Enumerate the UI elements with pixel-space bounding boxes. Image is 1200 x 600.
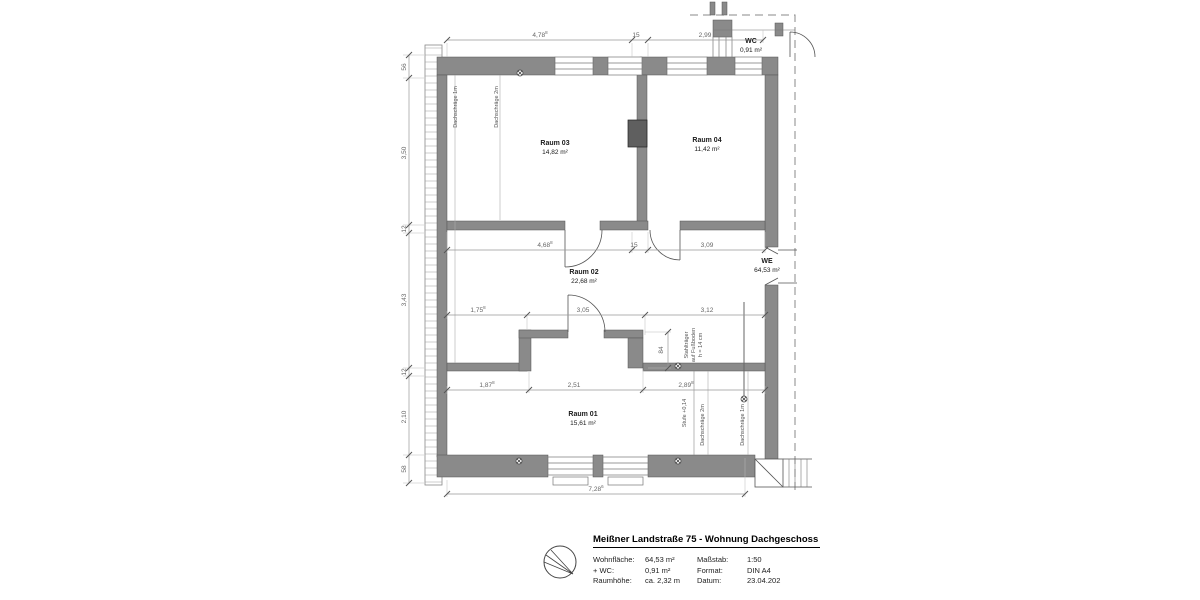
wall-top-2 [707,57,735,75]
wall-left [437,75,447,457]
window-sill-2 [608,477,643,485]
dim-label: 15 [630,242,638,249]
dim-label: 4,688 [537,240,553,249]
floor-plan-svg: 4,788 15 2,99 4,688 15 3,09 1,758 3,05 3… [0,0,1200,600]
column-marker-icon [675,363,681,369]
dim-label: 15 [632,32,640,39]
note-dachschraege-1m-br: Dachschräge 1m [740,404,746,446]
field-value: DIN A4 [747,566,820,577]
dim-label: 2,10 [401,410,408,423]
entrance-reveal [765,247,797,285]
field-label: Datum: [697,576,747,587]
note-stufe: Stufe +0,14 [682,399,688,427]
dim-label: 58 [401,465,408,473]
field-label: Format: [697,566,747,577]
door-raum04 [650,230,680,260]
wall-mid-1 [447,221,565,230]
wall-wc-hinge-block [775,23,783,36]
wall-top-1 [437,57,555,75]
wall-mid-3 [680,221,765,230]
field-label: Wohnfläche: [593,555,645,566]
title-block-fields: Wohnfläche: 64,53 m² Maßstab: 1:50 + WC:… [593,555,820,587]
note-stahltraeger-1: Stahlträger [684,331,690,358]
note-stahltraeger-3: h = 14 cm [698,332,704,357]
room-label-we: WE [761,258,773,265]
field-label: Maßstab: [697,555,747,566]
dim-label: 3,09 [701,242,714,249]
room-area-raum03: 14,82 m² [542,149,568,156]
field-value: 1:50 [747,555,820,566]
door-wc [790,32,815,57]
wall-stub-2 [722,2,727,15]
dim-label: 7,286 [588,484,604,493]
door-raum03 [565,230,602,267]
drawing-title: Meißner Landstraße 75 - Wohnung Dachgesc… [593,534,820,548]
dim-label: 3,50 [401,146,408,159]
field-label: + WC: [593,566,645,577]
wall-wc-left [713,20,732,37]
column-marker-icon [516,458,522,464]
wall-top-pier-2 [640,57,667,75]
wall-alcove-right [643,363,765,371]
field-value: 64,53 m² [645,555,697,566]
room-area-we: 64,53 m² [754,267,780,274]
wall-alcove-pier [628,338,643,368]
wall-top-pier-1 [593,57,608,75]
column-marker-icon [675,458,681,464]
room-label-raum03: Raum 03 [540,140,569,147]
dimension-labels: 4,788 15 2,99 4,688 15 3,09 1,758 3,05 3… [401,30,714,493]
window-top-1 [555,57,593,75]
note-dachschraege-2m-br: Dachschräge 2m [700,404,706,446]
dim-label: 2,898 [678,380,694,389]
wall-divider-r03-r04 [637,75,647,228]
logo-fan-lines [544,550,573,574]
dim-label: 3,43 [401,293,408,306]
wall-right-lower [765,285,778,459]
compass-logo [540,542,580,582]
dim-label: 3,12 [701,307,714,314]
dim-label: 56 [401,63,408,71]
room-label-raum02: Raum 02 [569,269,598,276]
dim-label: 4,788 [532,30,548,39]
wall-bottom-pier [593,455,603,477]
room-label-raum04: Raum 04 [692,137,721,144]
wall-alcove-top-left [519,330,568,338]
dim-label-beam: 84 [658,346,665,354]
window-top-4 [735,57,762,75]
note-dachschraege-1m-tl: Dachschräge 1m [453,86,459,128]
chimney-block [628,120,647,147]
dim-label: 3,05 [577,307,590,314]
dim-label: 12 [401,368,408,376]
room-label-wc: WC [745,38,757,45]
wall-bottom-1 [437,455,548,477]
wall-alcove-top-right [604,330,643,338]
dim-label: 1,758 [470,305,486,314]
wall-top-3 [762,57,778,75]
room-area-wc: 0,91 m² [740,47,763,54]
room-area-raum01: 15,61 m² [570,420,596,427]
wall-mid-2 [600,221,648,230]
wall-bottom-2 [648,455,755,477]
floor-plan-page: 4,788 15 2,99 4,688 15 3,09 1,758 3,05 3… [0,0,1200,600]
note-dachschraege-2m-tl: Dachschräge 2m [494,86,500,128]
room-area-raum04: 11,42 m² [694,146,720,153]
window-top-2 [608,57,642,75]
wall-right-upper [765,75,778,247]
field-value: 23.04.202 [747,576,820,587]
dim-label: 1,878 [479,380,495,389]
stair-treads [783,459,807,487]
window-sill-1 [553,477,588,485]
field-value: ca. 2,32 m [645,576,697,587]
stair-edges [783,459,812,487]
field-value: 0,91 m² [645,566,697,577]
window-bottom-2 [603,457,648,485]
exterior-stair [755,459,812,487]
field-label: Raumhöhe: [593,576,645,587]
column-marker-icon [517,70,523,76]
window-bottom-1 [548,457,593,485]
room-label-raum01: Raum 01 [568,411,597,418]
dim-label: 2,99 [699,32,712,39]
room-area-raum02: 22,68 m² [571,278,597,285]
dim-label: 12 [401,225,408,233]
dimension-ticks [406,37,768,497]
wall-stub-1 [710,2,715,15]
dim-label: 2,51 [568,382,581,389]
window-top-3 [667,57,707,75]
wall-alcove-left [447,363,527,371]
column-marker-icon [741,396,747,402]
title-block: Meißner Landstraße 75 - Wohnung Dachgesc… [540,534,820,587]
note-stahltraeger-2: auf Fußboden [691,328,697,362]
